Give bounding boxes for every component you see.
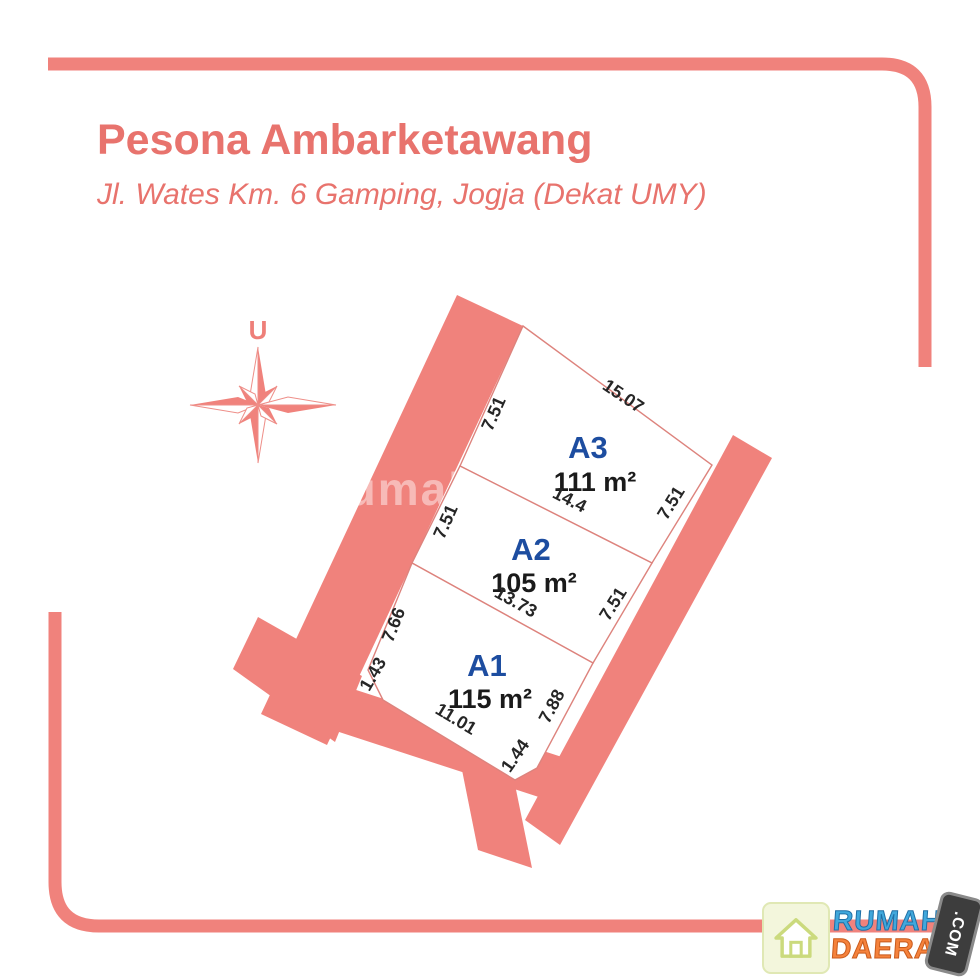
site-plan-image: U rumah [0,0,980,980]
page-subtitle: Jl. Wates Km. 6 Gamping, Jogja (Dekat UM… [97,178,707,212]
plot-a2-id: A2 [511,532,551,567]
compass-north-label: U [249,315,268,345]
house-icon [762,902,830,974]
brand-logo: RUMAH DAERAH .COM [756,892,980,978]
plot-a1-id: A1 [467,648,507,683]
house-icon-glyph [770,912,822,964]
plot-a3-id: A3 [568,430,608,465]
page-title: Pesona Ambarketawang [97,116,592,165]
logo-com-badge: .COM [923,890,980,978]
compass-rose: U [190,315,336,463]
logo-badge-text: .COM [940,910,969,959]
